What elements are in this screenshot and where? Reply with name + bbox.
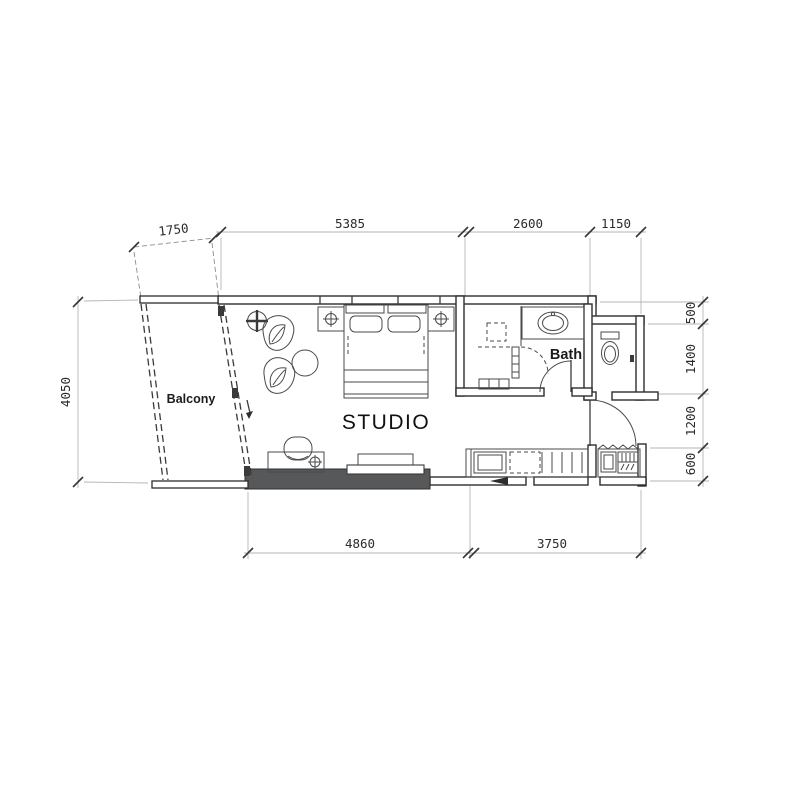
paper-holder: [630, 355, 634, 362]
bath-label: Bath: [550, 347, 582, 363]
studio-bath-divider: [456, 296, 464, 396]
dim-right-2: 1400: [683, 344, 698, 374]
bottom-wall-3: [600, 477, 646, 485]
armchair-2: [264, 358, 295, 394]
balcony: Balcony: [140, 296, 253, 488]
toilet: [601, 332, 619, 365]
kitchen-sink: [474, 452, 506, 473]
balcony-label: Balcony: [167, 392, 216, 406]
kitchen-right-unit: [598, 445, 640, 477]
dishwasher: [510, 452, 540, 473]
bath-door-arc: [540, 360, 571, 392]
kitchen-divider-stub: [588, 445, 596, 477]
shower-drain: [487, 323, 506, 341]
bottom-wall-1: [430, 477, 526, 485]
bathroom: Bath: [478, 306, 584, 392]
wc-right-wall: [636, 316, 644, 400]
bathroom-vanity: [522, 307, 584, 339]
bath-bottom-wall-right: [572, 388, 592, 396]
wc-bottom-wall: [612, 392, 658, 400]
balcony-top-rail: [140, 296, 218, 303]
towel-radiator: [512, 347, 519, 378]
top-wall: [218, 296, 596, 304]
dim-left-balcony: 4050: [58, 377, 73, 407]
dim-right-1: 500: [683, 302, 698, 325]
dim-bottom-entry: 3750: [537, 536, 567, 551]
studio: STUDIO: [246, 305, 454, 474]
slide-direction-arrow: [246, 400, 253, 419]
wc: [601, 332, 634, 365]
kitchen-cabinets: [542, 452, 582, 473]
tv-unit: [347, 454, 424, 474]
entry-door-arc: [590, 400, 636, 446]
nightstand-right: [428, 307, 454, 331]
studio-label: STUDIO: [342, 411, 430, 434]
shower-door-arc: [521, 347, 548, 374]
bath-wc-divider: [584, 304, 592, 400]
bed: [344, 305, 428, 398]
dim-balcony-width: 1750: [158, 220, 190, 238]
dimension-lines: 5385 2600 1150 1750 4050 500 1400 1200 6…: [58, 216, 709, 559]
floor-plan-drawing: 5385 2600 1150 1750 4050 500 1400 1200 6…: [0, 0, 800, 800]
dim-bottom-studio: 4860: [345, 536, 375, 551]
dim-top-bath: 2600: [513, 216, 543, 231]
dim-right-4: 600: [683, 453, 698, 476]
nightstand-left: [318, 307, 344, 331]
dim-top-studio: 5385: [335, 216, 365, 231]
side-table: [292, 350, 318, 376]
floor-plan: 5385 2600 1150 1750 4050 500 1400 1200 6…: [0, 0, 800, 800]
balcony-glass-door: [218, 305, 252, 479]
balcony-bottom-rail: [152, 481, 248, 488]
desk-chair: [284, 437, 312, 460]
dim-right-3: 1200: [683, 406, 698, 436]
dim-top-wc: 1150: [601, 216, 631, 231]
bottom-wall-2: [534, 477, 588, 485]
ceiling-light-icon: [246, 310, 268, 332]
drying-rack: [618, 452, 638, 473]
